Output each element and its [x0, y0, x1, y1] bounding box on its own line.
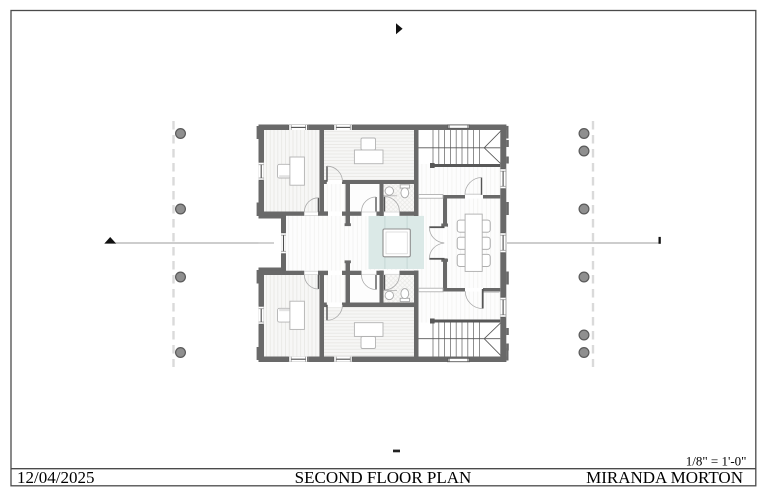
svg-text:SECOND FLOOR PLAN: SECOND FLOOR PLAN — [295, 468, 472, 487]
svg-text:1/8" = 1'-0": 1/8" = 1'-0" — [686, 454, 747, 469]
svg-text:MIRANDA MORTON: MIRANDA MORTON — [586, 468, 743, 487]
svg-text:12/04/2025: 12/04/2025 — [17, 468, 94, 487]
